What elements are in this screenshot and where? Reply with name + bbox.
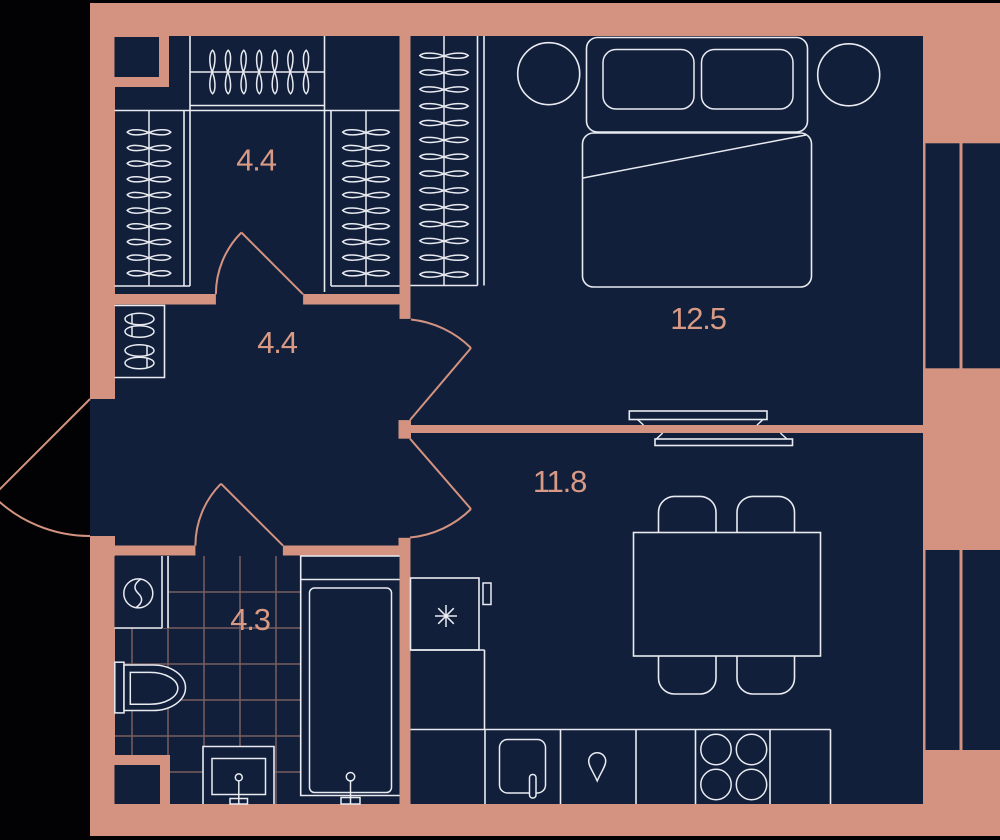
svg-text:12.5: 12.5 — [670, 301, 726, 336]
svg-text:4.3: 4.3 — [230, 602, 270, 637]
svg-text:4.4: 4.4 — [236, 143, 276, 178]
svg-text:11.8: 11.8 — [533, 464, 586, 499]
svg-text:4.4: 4.4 — [257, 325, 297, 360]
